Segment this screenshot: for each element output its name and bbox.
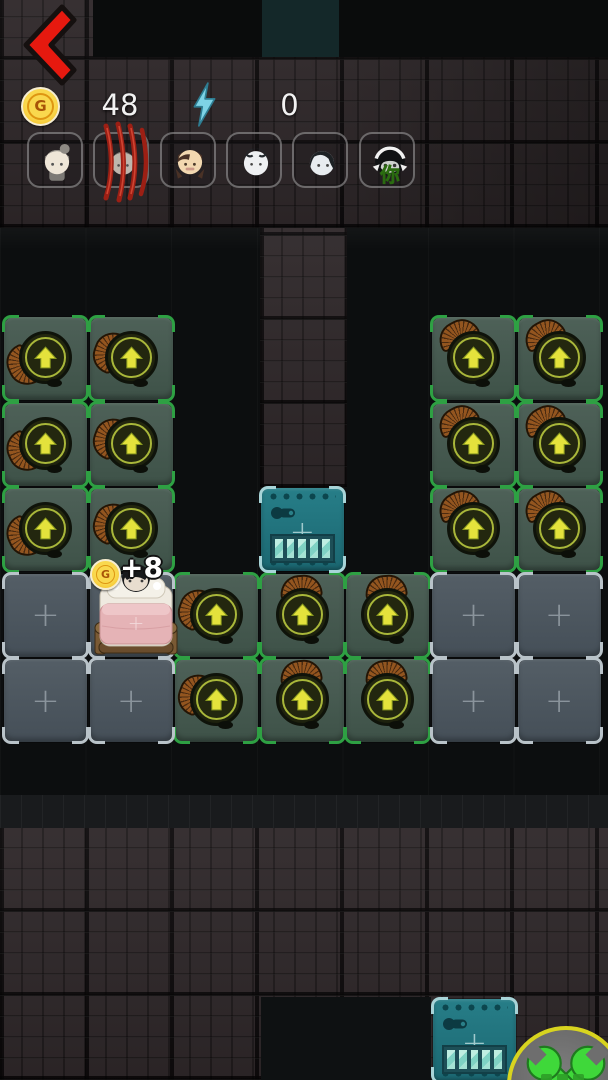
avatar-slot-2[interactable] [93,132,149,188]
upgrade-arrow-tile[interactable] [518,317,601,400]
upgrade-arrow-tile[interactable] [261,574,344,657]
up-arrow-icon [289,601,316,628]
empty-slot-tile[interactable]: + [518,574,601,657]
empty-slot-tile[interactable]: + [432,574,515,657]
coin-icon: G [90,559,121,590]
up-arrow-icon [32,430,59,457]
upgrade-button[interactable] [447,331,500,384]
empty-slot-tile[interactable]: + [90,659,173,742]
rivets [441,1003,508,1012]
svg-text:+: + [128,611,145,635]
up-arrow-icon [374,601,401,628]
upgrade-arrow-tile[interactable] [175,574,258,657]
svg-text:你: 你 [379,164,400,185]
empty-slot-tile[interactable]: + [432,659,515,742]
upgrade-arrow-tile[interactable] [4,403,87,486]
repair-label-glyphs [511,1074,608,1080]
upgrade-button[interactable] [190,588,243,641]
coin-counter-icon: G [21,87,60,126]
up-arrow-icon [546,344,573,371]
upgrade-arrow-tile[interactable] [346,659,429,742]
up-arrow-icon [289,686,316,713]
upgrade-arrow-tile[interactable] [518,403,601,486]
battery-bar [442,1045,507,1074]
upgrade-arrow-tile[interactable] [346,574,429,657]
up-arrow-icon [546,515,573,542]
empty-slot-tile[interactable]: + [4,574,87,657]
plus-icon: + [459,684,488,718]
up-arrow-icon [460,515,487,542]
upgrade-arrow-tile[interactable] [432,488,515,571]
up-arrow-icon [32,515,59,542]
avatar-slot-1[interactable] [27,132,83,188]
empty-slot-tile[interactable]: + [4,659,87,742]
up-arrow-icon [32,344,59,371]
up-arrow-icon [118,515,145,542]
upgrade-arrow-tile[interactable] [175,659,258,742]
battery-bar [270,534,335,563]
plus-icon: + [117,684,146,718]
upgrade-button[interactable] [276,588,329,641]
avatar-slot-4[interactable] [226,132,282,188]
upgrade-button[interactable] [105,331,158,384]
upgrade-arrow-tile[interactable] [518,488,601,571]
repair-button[interactable] [507,1026,608,1080]
upgrade-button[interactable] [447,502,500,555]
upgrade-button[interactable] [19,502,72,555]
bob-hair-kid-avatar [300,139,344,183]
brown-hair-girl-avatar [168,139,212,183]
plus-icon: + [31,598,60,632]
avatar-slot-3[interactable] [160,132,216,188]
upgrade-arrow-tile[interactable] [4,317,87,400]
gray-hair-girl-avatar [35,139,79,183]
plus-icon: + [545,598,574,632]
upgrade-button[interactable] [19,417,72,470]
upgrade-arrow-tile[interactable] [4,488,87,571]
back-button[interactable] [16,2,78,88]
coin-count: 48 [90,88,150,122]
upgrade-button[interactable] [447,417,500,470]
up-arrow-icon [203,686,230,713]
upgrade-button[interactable] [533,417,586,470]
upgrade-arrow-tile[interactable] [432,403,515,486]
upgrade-button[interactable] [105,502,158,555]
plus-icon: + [459,598,488,632]
up-arrow-icon [118,344,145,371]
battery-machine-tile[interactable]: + [433,999,516,1080]
claw-marks-icon [92,122,154,202]
up-arrow-icon [460,344,487,371]
battery-machine-tile[interactable]: + [261,488,344,571]
upgrade-button[interactable] [361,588,414,641]
upgrade-button[interactable] [533,502,586,555]
upgrade-arrow-tile[interactable] [261,659,344,742]
upgrade-button[interactable] [276,673,329,726]
game-screen: ++++++++++ + G +8 [0,0,608,1080]
headphone-girl-avatar: 你 [367,139,413,185]
upgrade-button[interactable] [19,331,72,384]
upgrade-arrow-tile[interactable] [90,403,173,486]
coin-popup-amount: +8 [120,551,163,584]
rivets [269,492,336,501]
upgrade-arrow-tile[interactable] [90,317,173,400]
up-arrow-icon [203,601,230,628]
pale-kid-avatar [234,139,278,183]
upgrade-button[interactable] [361,673,414,726]
plus-icon: + [31,684,60,718]
up-arrow-icon [460,430,487,457]
avatar-slot-6[interactable]: 你 [359,132,415,188]
upgrade-button[interactable] [533,331,586,384]
upgrade-arrow-tile[interactable] [432,317,515,400]
energy-icon [191,82,218,127]
up-arrow-icon [374,686,401,713]
upgrade-button[interactable] [190,673,243,726]
empty-slot-tile[interactable]: + [518,659,601,742]
up-arrow-icon [546,430,573,457]
up-arrow-icon [118,430,145,457]
avatar-slot-5[interactable] [292,132,348,188]
plus-icon: + [545,684,574,718]
upgrade-button[interactable] [105,417,158,470]
energy-count: 0 [262,88,317,122]
